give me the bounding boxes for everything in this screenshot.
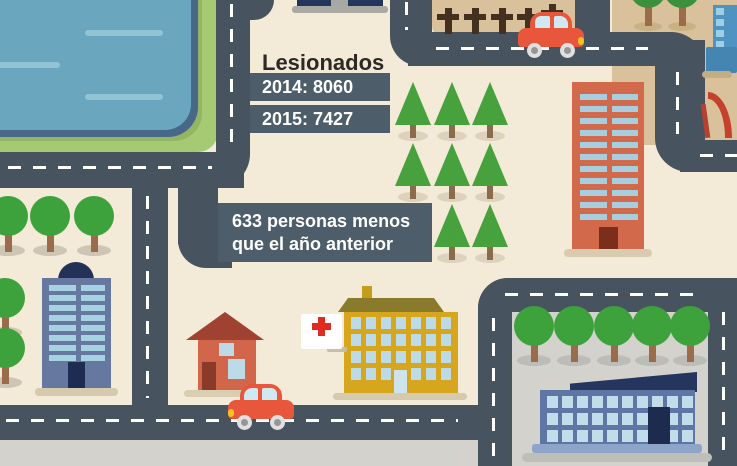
road-dash <box>146 196 149 398</box>
tower-window <box>580 178 607 184</box>
plaza-building-window <box>592 430 603 442</box>
plaza-building-window <box>622 413 633 425</box>
pine-tree-icon <box>434 82 470 142</box>
tower-window <box>580 166 607 172</box>
tree-foliage <box>594 306 634 346</box>
hospital-window <box>381 334 391 346</box>
tree-foliage <box>74 196 114 236</box>
hospital-window <box>411 368 421 380</box>
hospital-window <box>426 334 436 346</box>
tower-window <box>580 130 607 136</box>
hospital-roof <box>338 298 444 312</box>
tower-door <box>599 227 618 251</box>
plaza-building-window <box>607 396 618 408</box>
plaza-building-window <box>577 413 588 425</box>
road-dash <box>676 72 679 134</box>
office-window <box>81 345 105 351</box>
car-icon <box>518 12 584 58</box>
small-building-window <box>716 8 724 15</box>
tower-window <box>580 202 607 208</box>
small-building-window <box>716 19 724 26</box>
bench-base <box>292 6 388 13</box>
tower-window <box>580 94 607 100</box>
tree-foliage <box>434 82 470 125</box>
round-tree-icon <box>552 306 596 368</box>
car-body <box>518 28 584 47</box>
tree-foliage <box>0 328 25 368</box>
hospital-window <box>366 334 376 346</box>
plaza-building-window <box>562 413 573 425</box>
tree-foliage <box>434 143 470 186</box>
tree-foliage <box>554 306 594 346</box>
tower-window <box>612 190 638 196</box>
house-door <box>202 362 216 392</box>
tree-foliage <box>472 204 508 247</box>
hospital-window <box>411 334 421 346</box>
tower-window <box>612 202 638 208</box>
tower-window <box>612 130 638 136</box>
office-window <box>81 295 105 301</box>
road-dash <box>405 2 408 30</box>
tower-window <box>612 142 638 148</box>
plaza-building-window <box>682 413 693 425</box>
house-attic-window <box>219 343 234 356</box>
road-top-left-exit <box>390 0 432 66</box>
road-center-vertical <box>132 152 168 440</box>
plaza-building-window <box>637 396 648 408</box>
road-plaza-left <box>478 278 512 466</box>
pine-tree-icon <box>472 143 508 203</box>
plaza-building-window <box>592 413 603 425</box>
note-box: 633 personas menos que el año anterior <box>218 203 432 262</box>
road-dash <box>505 293 703 296</box>
pine-tree-icon <box>395 143 431 203</box>
tree-foliage <box>472 82 508 125</box>
round-tree-icon <box>72 196 116 258</box>
pine-tree-icon <box>434 204 470 264</box>
road-dash <box>230 4 233 142</box>
water-ripple <box>85 94 163 100</box>
grave-cross-icon <box>491 14 513 20</box>
round-tree-icon <box>0 196 30 258</box>
grave-cross-icon <box>437 8 459 34</box>
road-pool-vertical <box>216 0 250 155</box>
office-window <box>49 335 76 341</box>
office-window <box>49 345 76 351</box>
office-window <box>81 285 105 291</box>
car-icon <box>228 384 294 430</box>
small-blue-building-lower <box>706 47 737 73</box>
plaza-building-window <box>607 430 618 442</box>
tower-window <box>580 154 607 160</box>
office-window <box>81 315 105 321</box>
round-tree-icon <box>660 0 704 30</box>
hospital-window <box>366 368 376 380</box>
round-tree-icon <box>512 306 556 368</box>
tower-window <box>612 118 638 124</box>
house-roof <box>186 312 264 340</box>
small-building-window <box>716 30 724 37</box>
hospital-window <box>351 334 361 346</box>
plaza-building-shadow <box>522 453 712 462</box>
plaza-building-window <box>622 430 633 442</box>
pine-tree-icon <box>434 143 470 203</box>
hospital-window <box>366 351 376 363</box>
sidewalk-strip <box>0 440 500 466</box>
grave-cross-icon <box>464 8 486 34</box>
tree-foliage <box>632 306 672 346</box>
plaza-building-window <box>547 430 558 442</box>
tower-window <box>580 118 607 124</box>
road-dash <box>492 318 495 458</box>
office-window <box>49 325 76 331</box>
hospital-window <box>351 351 361 363</box>
office-window <box>81 335 105 341</box>
grave-cross-icon <box>437 14 459 20</box>
plaza-building-window <box>562 396 573 408</box>
plaza-building-window <box>562 430 573 442</box>
hospital-window <box>381 351 391 363</box>
pine-tree-icon <box>395 82 431 142</box>
tree-shadow <box>0 245 25 256</box>
round-tree-icon <box>668 306 712 368</box>
tree-foliage <box>0 278 25 318</box>
plaza-building-window <box>577 430 588 442</box>
round-tree-icon <box>28 196 72 258</box>
office-window <box>81 355 105 361</box>
car-body <box>228 400 294 419</box>
water-ripple <box>85 30 163 36</box>
grave-cross-icon <box>499 8 506 34</box>
car-headlight <box>578 37 584 45</box>
hospital-window <box>441 368 451 380</box>
water-ripple <box>0 62 60 68</box>
hospital-window <box>441 351 451 363</box>
hospital-window <box>441 317 451 329</box>
car-wheel <box>237 415 252 430</box>
grave-cross-icon <box>472 8 479 34</box>
hospital-window <box>381 317 391 329</box>
red-cross-icon <box>318 317 325 336</box>
plaza-building-window <box>682 396 693 408</box>
office-window <box>81 325 105 331</box>
tower-window <box>580 106 607 112</box>
hospital-window <box>351 368 361 380</box>
hospital-window <box>396 334 406 346</box>
tower-window <box>580 190 607 196</box>
road-dash <box>722 312 725 458</box>
hospital-window <box>351 317 361 329</box>
tree-foliage <box>472 143 508 186</box>
tower-window <box>612 166 638 172</box>
office-window <box>49 285 76 291</box>
grave-cross-icon <box>491 8 513 34</box>
plaza-building-window <box>682 430 693 442</box>
city-map-infographic: Lesionados 2014: 8060 2015: 7427 633 per… <box>0 0 737 466</box>
hospital-window <box>411 317 421 329</box>
building-shadow <box>702 71 732 78</box>
note-line-2: que el año anterior <box>232 233 432 256</box>
car-headlight <box>228 409 234 417</box>
tree-foliage <box>30 196 70 236</box>
tower-window <box>612 214 638 220</box>
hospital-window <box>426 317 436 329</box>
office-door <box>68 362 85 390</box>
grave-cross-icon <box>445 8 452 34</box>
plaza-building-window <box>607 413 618 425</box>
tree-foliage <box>664 0 700 8</box>
stat-box-2014: 2014: 8060 <box>250 73 390 101</box>
office-base <box>35 388 118 396</box>
office-window <box>49 355 76 361</box>
plaza-building-window <box>637 413 648 425</box>
stat-box-2015: 2015: 7427 <box>250 105 390 133</box>
office-window <box>49 295 76 301</box>
tree-foliage <box>395 82 431 125</box>
hospital-window <box>426 368 436 380</box>
note-line-1: 633 personas menos <box>232 210 432 233</box>
plaza-building-window <box>577 396 588 408</box>
tree-foliage <box>395 143 431 186</box>
plaza-building-window <box>637 430 648 442</box>
hospital-window <box>441 334 451 346</box>
hospital-door <box>394 370 407 394</box>
hospital-window <box>396 351 406 363</box>
tower-base <box>564 249 652 257</box>
hospital-window <box>381 368 391 380</box>
pine-tree-icon <box>472 204 508 264</box>
road-dash <box>8 166 212 169</box>
hospital-window <box>426 351 436 363</box>
office-window <box>81 305 105 311</box>
hospital-base <box>333 393 467 400</box>
plaza-building-door <box>648 407 670 448</box>
pine-tree-icon <box>472 82 508 142</box>
tower-window <box>612 178 638 184</box>
tower-window <box>580 214 607 220</box>
tower-window <box>612 154 638 160</box>
plaza-building-base <box>532 444 702 453</box>
road-dash <box>700 154 737 157</box>
plaza-building-window <box>592 396 603 408</box>
tree-foliage <box>670 306 710 346</box>
car-wheel <box>527 43 542 58</box>
tree-foliage <box>514 306 554 346</box>
car-wheel <box>560 43 575 58</box>
round-tree-icon <box>0 328 27 390</box>
hospital-window <box>366 317 376 329</box>
plaza-building-window <box>622 396 633 408</box>
tower-window <box>612 106 638 112</box>
plaza-building-window <box>547 396 558 408</box>
grave-cross-icon <box>464 14 486 20</box>
car-wheel <box>270 415 285 430</box>
tree-foliage <box>0 196 28 236</box>
office-window <box>49 305 76 311</box>
tower-window <box>612 94 638 100</box>
hospital-window <box>411 351 421 363</box>
house-window <box>228 359 245 379</box>
tower-window <box>580 142 607 148</box>
plaza-building-window <box>547 413 558 425</box>
hospital-window <box>396 317 406 329</box>
road-corner <box>250 0 274 20</box>
office-window <box>49 315 76 321</box>
tree-foliage <box>434 204 470 247</box>
